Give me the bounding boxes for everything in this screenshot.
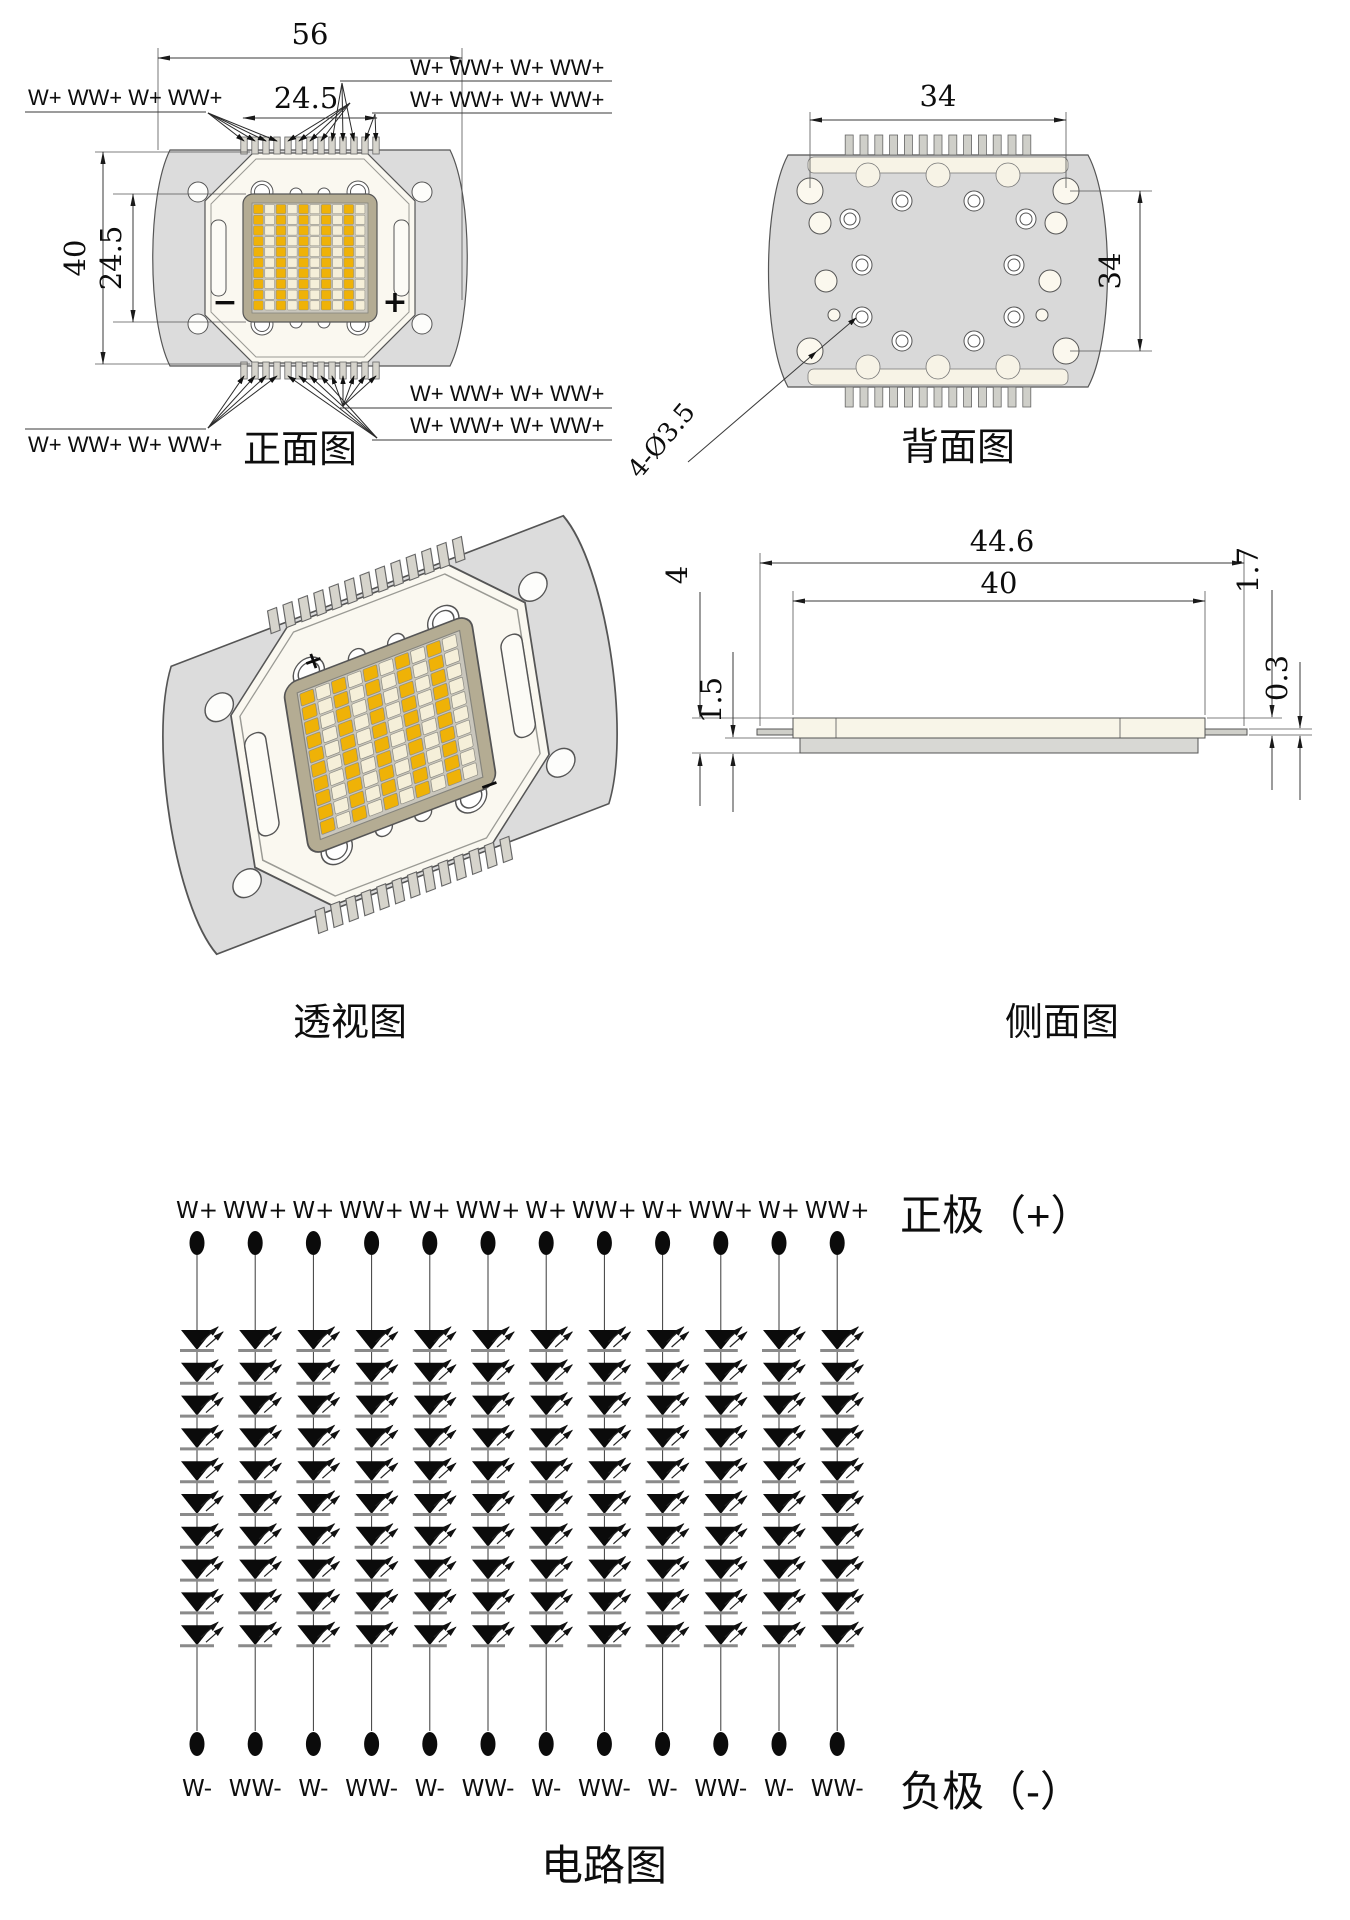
led-diode-symbol <box>529 1458 572 1482</box>
led-diode-symbol <box>762 1589 805 1613</box>
side-dim-top-height-text: 1.7 <box>1231 547 1265 593</box>
led-diode-symbol <box>238 1589 281 1613</box>
diode-triangle <box>705 1330 737 1350</box>
led-diode-symbol <box>762 1393 805 1417</box>
led-diode-symbol <box>296 1557 339 1581</box>
column-bottom-label: W- <box>531 1776 561 1802</box>
led-diode-symbol <box>180 1622 223 1646</box>
led-diode-symbol <box>238 1458 281 1482</box>
side-ceramic-layer <box>793 718 1205 738</box>
diode-triangle <box>530 1428 562 1448</box>
lead-pin <box>1023 387 1031 407</box>
ring-hole <box>964 191 984 211</box>
diode-triangle <box>181 1527 213 1547</box>
diode-triangle <box>530 1625 562 1645</box>
column-top-label: WW+ <box>688 1198 753 1224</box>
diode-triangle <box>181 1494 213 1514</box>
diode-triangle <box>414 1396 446 1416</box>
side-dim-pin-height: 0.3 <box>1249 655 1312 800</box>
diode-triangle <box>705 1363 737 1383</box>
diode-triangle <box>763 1396 795 1416</box>
diode-triangle <box>472 1363 504 1383</box>
lead-pin <box>890 387 898 407</box>
diode-triangle <box>356 1428 388 1448</box>
diode-triangle <box>472 1461 504 1481</box>
circuit-column: WW+WW- <box>572 1198 637 1802</box>
diode-triangle <box>530 1527 562 1547</box>
side-base-layer <box>800 738 1198 753</box>
led-diode-symbol <box>355 1327 398 1351</box>
diode-triangle <box>763 1428 795 1448</box>
diode-triangle <box>239 1592 271 1612</box>
diode-triangle <box>239 1461 271 1481</box>
front-dim-height-text: 40 <box>58 240 92 277</box>
diode-triangle <box>821 1560 853 1580</box>
lead-pin <box>904 135 912 155</box>
column-bottom-label: W- <box>648 1776 678 1802</box>
led-diode-symbol <box>180 1393 223 1417</box>
column-top-label: W+ <box>525 1198 567 1224</box>
diode-triangle <box>181 1330 213 1350</box>
lead-arrow <box>208 376 255 428</box>
led-diode-symbol <box>413 1524 456 1548</box>
column-bottom-label: W- <box>182 1776 212 1802</box>
diode-triangle <box>821 1592 853 1612</box>
diode-triangle <box>647 1625 679 1645</box>
led-diode-symbol <box>529 1327 572 1351</box>
led-diode-symbol <box>413 1557 456 1581</box>
diode-triangle <box>297 1461 329 1481</box>
diode-triangle <box>588 1428 620 1448</box>
lead-pin <box>964 135 972 155</box>
led-diode-symbol <box>820 1491 863 1515</box>
led-diode-symbol <box>587 1327 630 1351</box>
side-view-title: 侧面图 <box>1005 1002 1119 1044</box>
lead-pin <box>875 135 883 155</box>
back-view-title: 背面图 <box>901 427 1015 469</box>
led-diode-symbol <box>820 1589 863 1613</box>
led-diode-symbol <box>413 1327 456 1351</box>
led-diode-symbol <box>296 1425 339 1449</box>
column-top-label: W+ <box>409 1198 451 1224</box>
led-diode-symbol <box>413 1360 456 1384</box>
lead-arrow <box>342 83 354 141</box>
column-top-label: WW+ <box>223 1198 288 1224</box>
led-diode-symbol <box>820 1622 863 1646</box>
column-top-label: WW+ <box>456 1198 521 1224</box>
negative-node-dot <box>655 1732 670 1756</box>
led-diode-symbol <box>820 1458 863 1482</box>
led-diode-symbol <box>587 1360 630 1384</box>
back-pins-top <box>845 135 1031 155</box>
led-diode-symbol <box>471 1589 514 1613</box>
led-diode-symbol <box>238 1360 281 1384</box>
side-view: 44.6 40 4 1.5 1.7 <box>660 524 1312 1044</box>
side-dim-body-text: 40 <box>981 566 1018 600</box>
circuit-title: 电路图 <box>541 1842 667 1889</box>
diode-triangle <box>356 1494 388 1514</box>
diode-triangle <box>297 1428 329 1448</box>
lead-pin <box>934 387 942 407</box>
column-top-label: WW+ <box>339 1198 404 1224</box>
ring-hole <box>1016 209 1036 229</box>
led-module-drawing: − + 56 24.5 40 24.5 W+ WW+ W+ WW+ W+ <box>0 0 1350 1920</box>
lead-pin <box>875 387 883 407</box>
led-diode-symbol <box>238 1524 281 1548</box>
diode-triangle <box>763 1461 795 1481</box>
side-pin-left <box>757 729 793 735</box>
led-diode-symbol <box>238 1557 281 1581</box>
ring-hole <box>964 331 984 351</box>
lead-pin <box>1023 135 1031 155</box>
back-dim-height-text: 34 <box>1093 253 1127 290</box>
lead-arrow <box>208 113 255 141</box>
circuit-column: W+W- <box>176 1198 223 1802</box>
negative-node-dot <box>830 1732 845 1756</box>
led-diode-symbol <box>355 1491 398 1515</box>
led-diode-symbol <box>238 1491 281 1515</box>
lead-arrow <box>208 376 244 428</box>
diode-triangle <box>763 1625 795 1645</box>
diode-triangle <box>530 1560 562 1580</box>
lead-pin <box>949 135 957 155</box>
lead-pin <box>978 135 986 155</box>
column-top-label: WW+ <box>805 1198 870 1224</box>
diode-triangle <box>821 1363 853 1383</box>
led-diode-symbol <box>529 1393 572 1417</box>
circuit-column: WW+WW- <box>223 1198 288 1802</box>
back-dim-width-text: 34 <box>920 79 957 113</box>
led-diode-symbol <box>471 1557 514 1581</box>
led-diode-symbol <box>587 1425 630 1449</box>
lead-pin <box>890 135 898 155</box>
led-diode-symbol <box>762 1458 805 1482</box>
column-top-label: WW+ <box>572 1198 637 1224</box>
led-diode-symbol <box>820 1360 863 1384</box>
diode-triangle <box>588 1396 620 1416</box>
diode-triangle <box>239 1428 271 1448</box>
diode-triangle <box>414 1428 446 1448</box>
led-diode-symbol <box>646 1393 689 1417</box>
positive-node-dot <box>772 1231 787 1255</box>
led-diode-symbol <box>296 1589 339 1613</box>
diode-triangle <box>588 1592 620 1612</box>
positive-node-dot <box>713 1231 728 1255</box>
led-diode-symbol <box>413 1425 456 1449</box>
front-bottom-right-leads-1: W+ WW+ W+ WW+ <box>410 381 604 406</box>
diode-triangle <box>705 1461 737 1481</box>
diode-triangle <box>181 1428 213 1448</box>
led-diode-symbol <box>238 1327 281 1351</box>
led-diode-symbol <box>587 1491 630 1515</box>
diode-triangle <box>472 1428 504 1448</box>
diode-triangle <box>414 1527 446 1547</box>
led-diode-symbol <box>529 1425 572 1449</box>
led-diode-symbol <box>762 1425 805 1449</box>
led-diode-symbol <box>820 1557 863 1581</box>
led-diode-symbol <box>529 1524 572 1548</box>
led-diode-symbol <box>646 1458 689 1482</box>
led-diode-symbol <box>646 1360 689 1384</box>
circuit-column: W+W- <box>758 1198 805 1802</box>
negative-node-dot <box>248 1732 263 1756</box>
circuit-column: WW+WW- <box>688 1198 753 1802</box>
side-dim-total-height: 4 <box>660 566 802 806</box>
negative-node-dot <box>539 1732 554 1756</box>
lead-arrow <box>343 376 365 406</box>
led-diode-symbol <box>471 1622 514 1646</box>
diode-triangle <box>239 1494 271 1514</box>
led-diode-symbol <box>646 1589 689 1613</box>
column-bottom-label: WW- <box>462 1776 515 1802</box>
diode-triangle <box>530 1592 562 1612</box>
led-diode-symbol <box>296 1327 339 1351</box>
led-diode-symbol <box>296 1524 339 1548</box>
perspective-view: + − 透视图 <box>144 489 636 1044</box>
led-diode-symbol <box>355 1360 398 1384</box>
led-diode-symbol <box>704 1524 747 1548</box>
led-diode-symbol <box>704 1491 747 1515</box>
technical-drawing-page: − + 56 24.5 40 24.5 W+ WW+ W+ WW+ W+ <box>0 0 1350 1920</box>
diode-triangle <box>472 1330 504 1350</box>
front-view: − + 56 24.5 40 24.5 W+ WW+ W+ WW+ W+ <box>25 17 612 471</box>
circuit-column: W+W- <box>525 1198 572 1802</box>
led-diode-symbol <box>296 1491 339 1515</box>
positive-node-dot <box>597 1231 612 1255</box>
led-diode-symbol <box>355 1425 398 1449</box>
side-dim-base-height-text: 1.5 <box>694 677 728 723</box>
diode-triangle <box>821 1330 853 1350</box>
front-dim-inner-width: 24.5 <box>243 81 377 118</box>
led-diode-symbol <box>413 1589 456 1613</box>
negative-node-dot <box>364 1732 379 1756</box>
led-diode-symbol <box>762 1360 805 1384</box>
diode-triangle <box>297 1625 329 1645</box>
led-diode-symbol <box>646 1491 689 1515</box>
lead-pin <box>860 135 868 155</box>
side-dim-overall: 44.6 <box>760 524 1244 726</box>
led-diode-symbol <box>762 1622 805 1646</box>
diode-triangle <box>414 1560 446 1580</box>
diode-triangle <box>647 1461 679 1481</box>
diode-triangle <box>239 1396 271 1416</box>
diode-triangle <box>356 1625 388 1645</box>
led-diode-symbol <box>180 1557 223 1581</box>
circuit-column: WW+WW- <box>805 1198 870 1802</box>
diode-triangle <box>181 1461 213 1481</box>
side-dim-total-height-text: 4 <box>660 566 694 584</box>
diode-triangle <box>297 1494 329 1514</box>
led-diode-symbol <box>704 1425 747 1449</box>
diode-triangle <box>356 1396 388 1416</box>
negative-node-dot <box>481 1732 496 1756</box>
diode-triangle <box>530 1396 562 1416</box>
lead-pin <box>904 387 912 407</box>
diode-triangle <box>705 1494 737 1514</box>
lead-arrow <box>342 83 343 141</box>
diode-triangle <box>356 1592 388 1612</box>
led-diode-symbol <box>180 1589 223 1613</box>
lead-pin <box>949 387 957 407</box>
diode-triangle <box>356 1560 388 1580</box>
led-diode-symbol <box>471 1458 514 1482</box>
negative-node-dot <box>306 1732 321 1756</box>
column-bottom-label: WW- <box>578 1776 631 1802</box>
led-diode-symbol <box>296 1360 339 1384</box>
positive-node-dot <box>655 1231 670 1255</box>
lead-pin <box>860 387 868 407</box>
led-diode-symbol <box>180 1524 223 1548</box>
negative-node-dot <box>772 1732 787 1756</box>
diode-triangle <box>705 1625 737 1645</box>
diode-triangle <box>588 1560 620 1580</box>
diode-triangle <box>297 1560 329 1580</box>
front-dim-width-text: 56 <box>292 17 329 51</box>
led-diode-symbol <box>180 1327 223 1351</box>
diode-triangle <box>647 1363 679 1383</box>
positive-node-dot <box>422 1231 437 1255</box>
column-top-label: W+ <box>292 1198 334 1224</box>
side-dim-body: 40 <box>793 566 1205 715</box>
ring-hole <box>852 307 872 327</box>
positive-node-dot <box>306 1231 321 1255</box>
ring-hole <box>892 191 912 211</box>
diode-triangle <box>472 1625 504 1645</box>
diode-triangle <box>414 1592 446 1612</box>
diode-triangle <box>181 1396 213 1416</box>
diode-triangle <box>705 1527 737 1547</box>
diode-triangle <box>763 1363 795 1383</box>
led-diode-symbol <box>820 1425 863 1449</box>
diode-triangle <box>472 1560 504 1580</box>
positive-node-dot <box>248 1231 263 1255</box>
led-diode-symbol <box>587 1393 630 1417</box>
led-diode-symbol <box>646 1327 689 1351</box>
led-diode-symbol <box>529 1622 572 1646</box>
diode-triangle <box>239 1330 271 1350</box>
front-bottom-right-leads-2: W+ WW+ W+ WW+ <box>410 413 604 438</box>
diode-triangle <box>763 1330 795 1350</box>
led-diode-symbol <box>296 1393 339 1417</box>
led-diode-symbol <box>355 1557 398 1581</box>
led-diode-symbol <box>704 1458 747 1482</box>
front-dim-inner-width-text: 24.5 <box>274 81 339 115</box>
front-top-right-leads-2: W+ WW+ W+ WW+ <box>410 87 604 112</box>
diode-triangle <box>181 1560 213 1580</box>
led-diode-symbol <box>238 1622 281 1646</box>
diode-triangle <box>588 1527 620 1547</box>
diode-triangle <box>472 1527 504 1547</box>
diode-triangle <box>821 1428 853 1448</box>
circuit-column: W+W- <box>292 1198 339 1802</box>
led-diode-symbol <box>471 1327 514 1351</box>
diode-triangle <box>647 1428 679 1448</box>
diode-triangle <box>705 1396 737 1416</box>
positive-node-dot <box>481 1231 496 1255</box>
diode-triangle <box>297 1330 329 1350</box>
side-pin-right <box>1205 729 1247 735</box>
led-diode-symbol <box>296 1622 339 1646</box>
ring-hole <box>840 209 860 229</box>
negative-node-dot <box>597 1732 612 1756</box>
led-diode-symbol <box>820 1327 863 1351</box>
diode-triangle <box>647 1494 679 1514</box>
led-diode-symbol <box>587 1622 630 1646</box>
side-dim-overall-text: 44.6 <box>970 524 1035 558</box>
led-diode-symbol <box>762 1491 805 1515</box>
led-diode-symbol <box>355 1589 398 1613</box>
diode-triangle <box>181 1625 213 1645</box>
diode-triangle <box>239 1527 271 1547</box>
back-view: 34 34 4-Ø3.5 背面图 <box>622 79 1152 484</box>
negative-node-dot <box>713 1732 728 1756</box>
diode-triangle <box>705 1592 737 1612</box>
led-diode-symbol <box>704 1360 747 1384</box>
column-bottom-label: W- <box>415 1776 445 1802</box>
led-diode-symbol <box>471 1360 514 1384</box>
front-bottom-left-leads: W+ WW+ W+ WW+ <box>28 432 222 457</box>
led-diode-symbol <box>529 1557 572 1581</box>
led-diode-symbol <box>238 1393 281 1417</box>
circuit-column: W+W- <box>409 1198 456 1802</box>
diode-triangle <box>705 1560 737 1580</box>
led-diode-symbol <box>180 1360 223 1384</box>
lead-arrow <box>208 376 277 428</box>
lead-pin <box>993 387 1001 407</box>
negative-node-dot <box>190 1732 205 1756</box>
column-bottom-label: WW- <box>345 1776 398 1802</box>
diode-triangle <box>414 1330 446 1350</box>
front-view-title: 正面图 <box>243 429 357 471</box>
column-bottom-label: WW- <box>694 1776 747 1802</box>
diode-triangle <box>763 1592 795 1612</box>
diode-triangle <box>647 1396 679 1416</box>
diode-triangle <box>472 1592 504 1612</box>
lead-pin <box>934 135 942 155</box>
lead-pin <box>1008 135 1016 155</box>
negative-node-dot <box>422 1732 437 1756</box>
front-top-left-leads: W+ WW+ W+ WW+ <box>28 85 222 110</box>
ring-hole <box>1004 255 1024 275</box>
lead-arrow <box>208 113 266 141</box>
led-diode-symbol <box>704 1557 747 1581</box>
led-diode-symbol <box>471 1491 514 1515</box>
lead-pin <box>845 387 853 407</box>
diode-triangle <box>297 1592 329 1612</box>
diode-triangle <box>239 1363 271 1383</box>
diode-triangle <box>414 1363 446 1383</box>
positive-node-dot <box>364 1231 379 1255</box>
diode-triangle <box>414 1494 446 1514</box>
front-plus-terminal: + <box>382 285 407 320</box>
diode-triangle <box>530 1363 562 1383</box>
lead-pin <box>919 387 927 407</box>
side-dim-pin-height-text: 0.3 <box>1260 655 1294 701</box>
led-diode-symbol <box>762 1524 805 1548</box>
diode-triangle <box>530 1494 562 1514</box>
lead-pin <box>919 135 927 155</box>
diode-triangle <box>821 1494 853 1514</box>
diode-triangle <box>356 1461 388 1481</box>
diode-triangle <box>472 1396 504 1416</box>
led-diode-symbol <box>646 1622 689 1646</box>
diode-triangle <box>588 1494 620 1514</box>
ring-hole <box>892 331 912 351</box>
circuit-column: WW+WW- <box>456 1198 521 1802</box>
diode-triangle <box>356 1363 388 1383</box>
diode-triangle <box>297 1363 329 1383</box>
circuit-positive-terminal-label: 正极（+） <box>900 1192 1093 1239</box>
